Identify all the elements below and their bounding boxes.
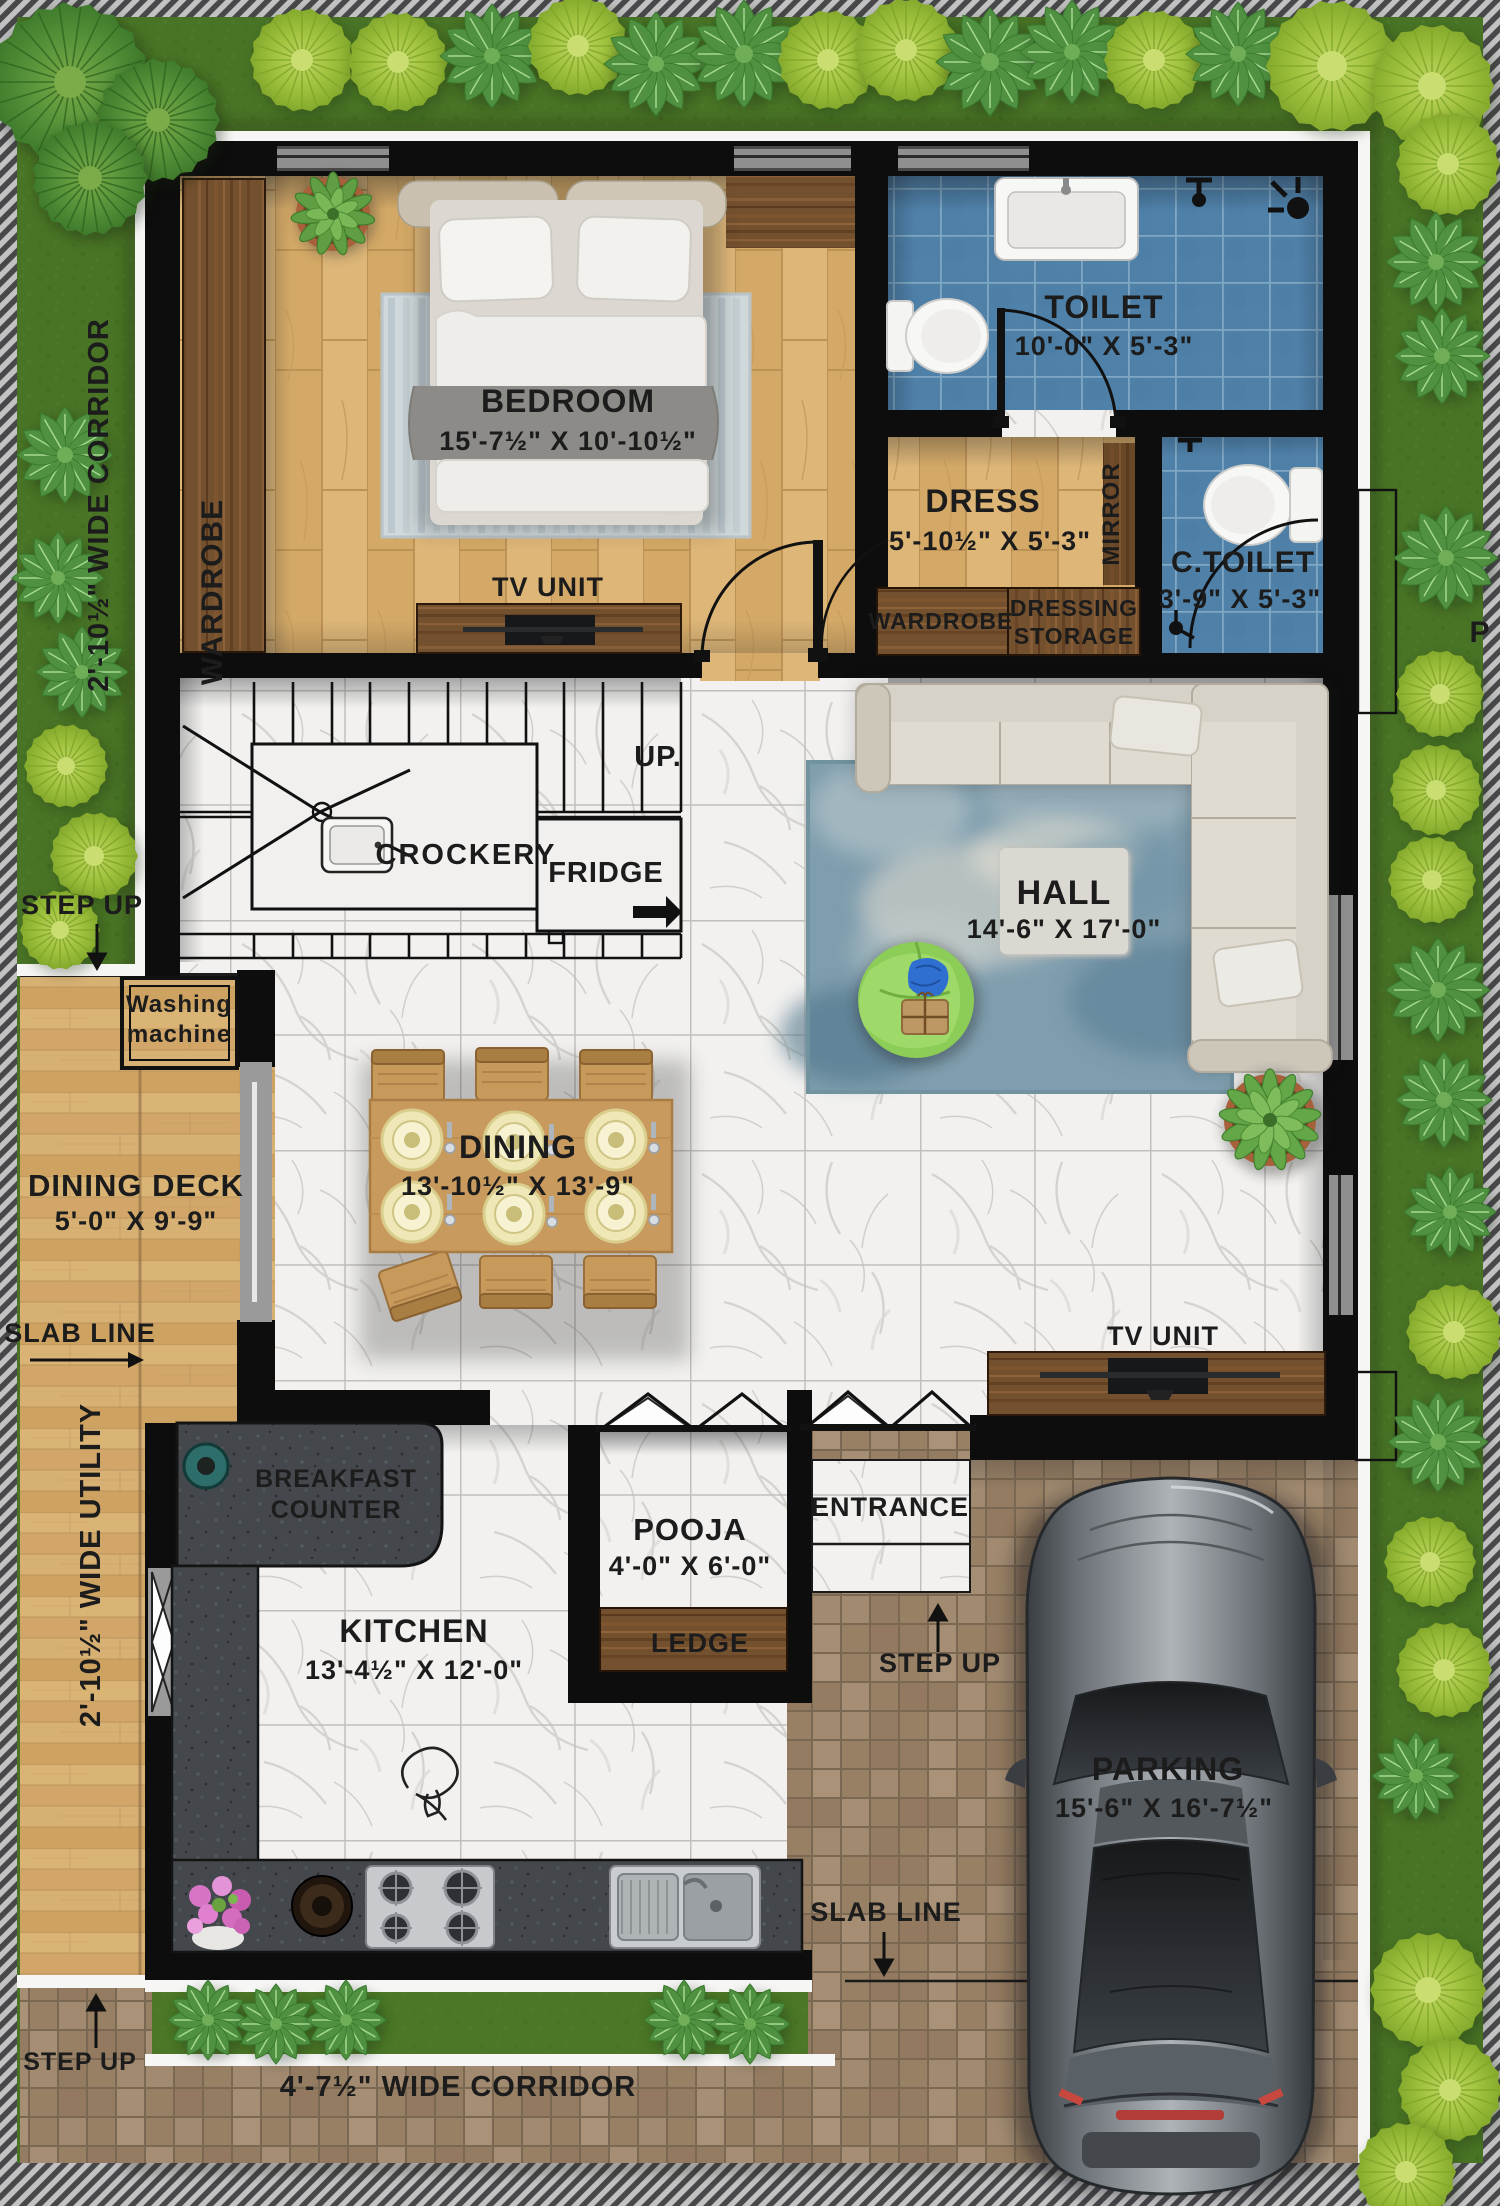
svg-text:CROCKERY: CROCKERY [376, 839, 557, 871]
svg-text:13'-4½" X 12'-0": 13'-4½" X 12'-0" [305, 1655, 523, 1685]
svg-text:15'-7½" X 10'-10½": 15'-7½" X 10'-10½" [439, 426, 697, 456]
svg-text:STEP UP: STEP UP [879, 1648, 1001, 1678]
svg-text:LEDGE: LEDGE [651, 1628, 749, 1658]
svg-text:MIRROR: MIRROR [1098, 462, 1125, 565]
svg-text:STEP UP: STEP UP [21, 890, 143, 920]
svg-text:DINING: DINING [459, 1129, 577, 1165]
svg-text:HALL: HALL [1017, 874, 1112, 912]
svg-text:TV UNIT: TV UNIT [1107, 1321, 1219, 1351]
svg-text:COUNTER: COUNTER [271, 1496, 402, 1524]
svg-text:P: P [1469, 616, 1490, 649]
svg-text:DRESSING: DRESSING [1010, 595, 1138, 621]
svg-text:TV UNIT: TV UNIT [492, 572, 604, 602]
svg-text:STEP UP: STEP UP [23, 2048, 137, 2076]
svg-text:SLAB LINE: SLAB LINE [4, 1318, 156, 1348]
svg-text:13'-10½" X 13'-9": 13'-10½" X 13'-9" [401, 1171, 635, 1201]
svg-text:machine: machine [127, 1021, 231, 1048]
svg-text:ENTRANCE: ENTRANCE [811, 1492, 969, 1522]
svg-text:DRESS: DRESS [925, 483, 1040, 519]
svg-text:POOJA: POOJA [633, 1512, 747, 1547]
svg-text:PARKING: PARKING [1092, 1751, 1244, 1787]
svg-text:KITCHEN: KITCHEN [339, 1613, 488, 1649]
svg-text:5'-0" X 9'-9": 5'-0" X 9'-9" [55, 1206, 218, 1236]
svg-text:BREAKFAST: BREAKFAST [255, 1465, 417, 1493]
svg-text:Washing: Washing [126, 991, 232, 1018]
svg-text:15'-6" X 16'-7½": 15'-6" X 16'-7½" [1055, 1793, 1273, 1823]
svg-text:SLAB LINE: SLAB LINE [810, 1897, 962, 1927]
svg-text:TOILET: TOILET [1044, 289, 1163, 325]
svg-text:UP.: UP. [634, 741, 682, 773]
svg-text:4'-0" X 6'-0": 4'-0" X 6'-0" [609, 1551, 772, 1581]
svg-text:WARDROBE: WARDROBE [869, 608, 1014, 634]
svg-text:WARDROBE: WARDROBE [196, 499, 229, 685]
svg-text:14'-6" X 17'-0": 14'-6" X 17'-0" [967, 914, 1162, 944]
svg-text:3'-9" X 5'-3": 3'-9" X 5'-3" [1159, 584, 1322, 614]
svg-text:FRIDGE: FRIDGE [548, 857, 664, 889]
svg-text:5'-10½" X 5'-3": 5'-10½" X 5'-3" [889, 526, 1091, 556]
svg-text:4'-7½" WIDE CORRIDOR: 4'-7½" WIDE CORRIDOR [280, 2071, 636, 2103]
svg-text:BEDROOM: BEDROOM [481, 383, 655, 419]
svg-text:2'-10½" WIDE UTILITY: 2'-10½" WIDE UTILITY [75, 1403, 107, 1727]
svg-text:10'-0" X 5'-3": 10'-0" X 5'-3" [1015, 331, 1194, 361]
svg-text:C.TOILET: C.TOILET [1171, 546, 1315, 579]
svg-text:STORAGE: STORAGE [1014, 623, 1134, 649]
svg-text:DINING DECK: DINING DECK [28, 1168, 244, 1203]
svg-text:2'-10½" WIDE CORRIDOR: 2'-10½" WIDE CORRIDOR [83, 318, 115, 692]
